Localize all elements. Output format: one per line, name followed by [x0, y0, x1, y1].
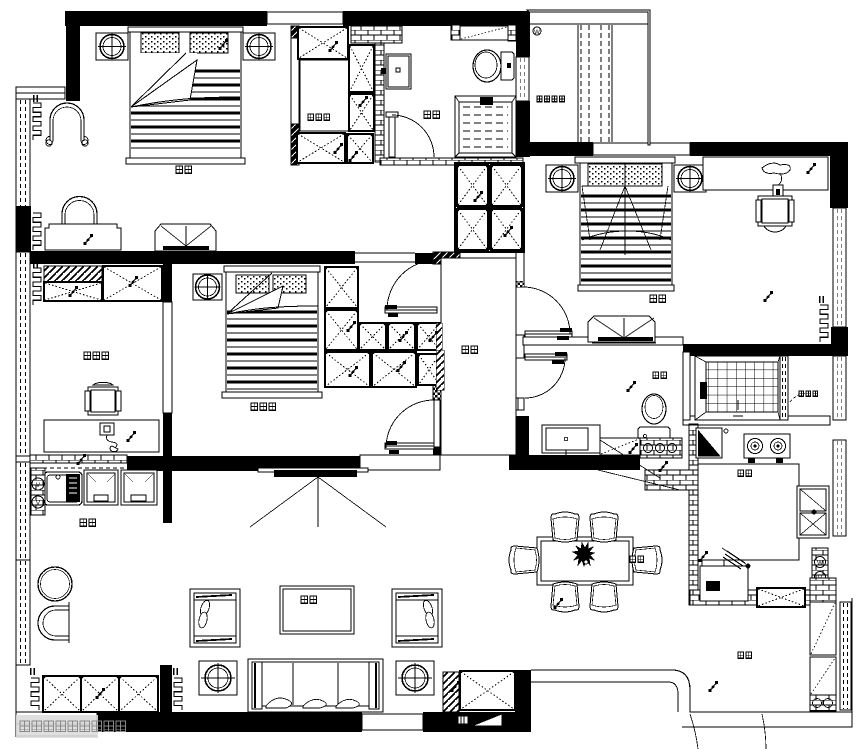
svg-text:W: W	[534, 30, 540, 36]
svg-text:V: V	[36, 483, 40, 489]
svg-text:V: V	[36, 501, 40, 507]
svg-text:W: W	[817, 561, 823, 567]
